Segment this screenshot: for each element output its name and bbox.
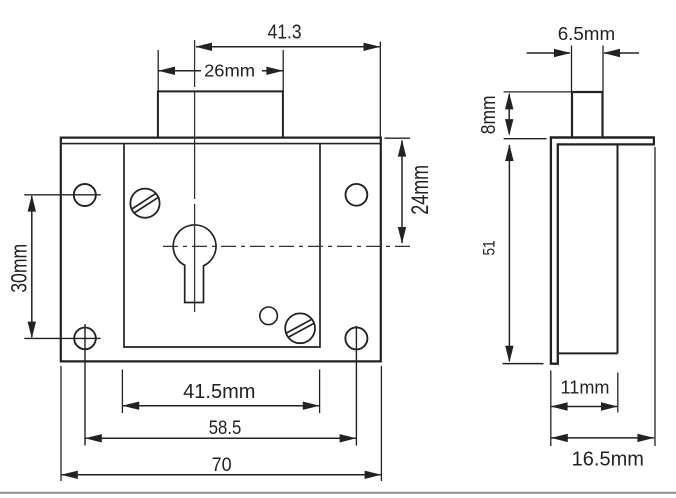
svg-text:8mm: 8mm — [478, 96, 500, 135]
svg-text:51: 51 — [480, 240, 498, 255]
svg-text:26mm: 26mm — [204, 60, 255, 80]
svg-text:70: 70 — [212, 454, 232, 476]
svg-text:11mm: 11mm — [561, 378, 610, 398]
svg-text:24mm: 24mm — [407, 165, 434, 215]
svg-text:16.5mm: 16.5mm — [572, 448, 644, 470]
svg-text:41.5mm: 41.5mm — [183, 381, 255, 403]
svg-text:30mm: 30mm — [7, 244, 32, 293]
svg-text:58.5: 58.5 — [209, 418, 242, 439]
svg-text:6.5mm: 6.5mm — [558, 23, 615, 44]
svg-text:41.3: 41.3 — [268, 22, 302, 44]
